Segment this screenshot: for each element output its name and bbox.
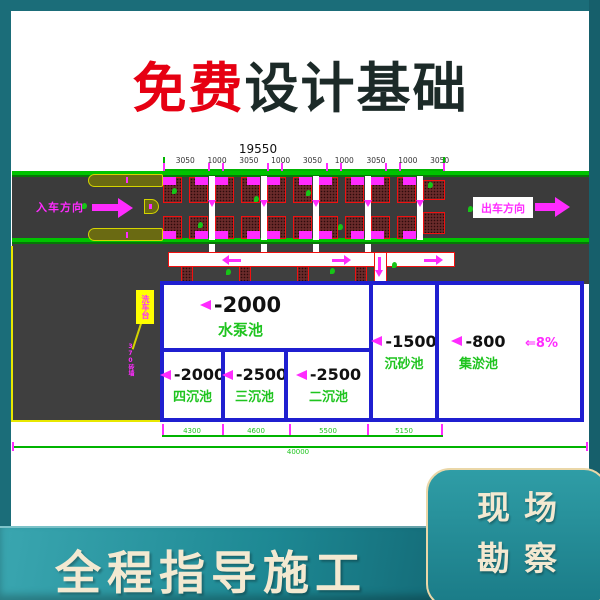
stall-marker — [403, 177, 416, 185]
dim-tick — [586, 442, 588, 451]
stall-marker — [163, 177, 176, 185]
stall-pad — [397, 216, 416, 239]
site-boundary-left — [11, 246, 13, 422]
stall-marker — [267, 177, 280, 185]
stall-marker — [371, 231, 384, 239]
pool-name: 沉砂池 — [384, 353, 423, 372]
stall-lane — [209, 176, 215, 240]
pool-depth: -800 — [465, 332, 505, 351]
entry-arrow-icon — [92, 204, 118, 211]
stall-marker — [371, 177, 384, 185]
stall-marker — [299, 177, 312, 185]
dim-seg: 3050 — [354, 156, 399, 165]
entry-direction-label: 入车方向 — [36, 199, 84, 215]
stall-marker — [215, 231, 228, 239]
stall-pad — [215, 177, 234, 203]
headline-rest: 设计基础 — [245, 44, 469, 123]
stall-marker — [247, 177, 260, 185]
entry-arrow-head-icon — [118, 198, 133, 218]
pool-name: 四沉池 — [173, 386, 212, 405]
plant-icon — [172, 188, 177, 194]
exit-direction-label: 出车方向 — [473, 197, 533, 218]
depth-marker-icon — [200, 300, 211, 310]
exit-arrow-head-icon — [555, 197, 570, 217]
pool-name: 二沉池 — [309, 386, 348, 405]
footer-slogan: 全程指导施工 — [55, 537, 367, 600]
stall-marker — [351, 177, 364, 185]
dim-label: 4600 — [236, 427, 276, 435]
headline: 免费设计基础 — [12, 48, 589, 118]
dim-tick — [12, 442, 14, 451]
stall-pad — [163, 216, 182, 239]
stall-pad — [371, 216, 390, 239]
plant-icon — [338, 224, 343, 230]
plant-icon — [198, 222, 203, 228]
pool-depth: -2500 — [310, 365, 361, 384]
dim-seg: 1000 — [398, 156, 417, 165]
pool-third: -2500 三沉池 — [221, 348, 288, 422]
pool-depth: -2000 — [174, 365, 225, 384]
dim-seg: 3050 — [290, 156, 335, 165]
stall-lane — [261, 176, 267, 240]
wash-stall-group — [267, 177, 313, 239]
stall-pad — [267, 177, 286, 203]
drain-channel — [168, 252, 455, 267]
stall-marker — [299, 231, 312, 239]
pool-name: 水泵池 — [218, 319, 263, 340]
dim-seg: 3050 — [227, 156, 272, 165]
dimension-segments: 3050 1000 3050 1000 3050 1000 3050 1000 … — [163, 156, 444, 165]
dim-seg: 3050 — [417, 156, 462, 165]
stall-marker — [319, 231, 332, 239]
stall-marker — [319, 177, 332, 185]
flow-arrow-right-icon — [332, 255, 351, 265]
dim-label: 5500 — [308, 427, 348, 435]
stall-pad — [423, 212, 445, 234]
channel-pillar — [297, 266, 309, 282]
stall-marker — [215, 177, 228, 185]
stall-lane — [313, 176, 319, 240]
island-mark — [126, 177, 128, 183]
depth-marker-icon — [222, 370, 233, 380]
dimension-line — [162, 435, 443, 437]
stall-marker — [195, 231, 208, 239]
channel-pillar — [239, 266, 251, 282]
lane-arrow-icon — [208, 200, 216, 207]
dimension-total-top: 19550 — [225, 142, 291, 156]
flow-arrow-right-icon — [424, 255, 443, 265]
overall-dim-label: 40000 — [278, 448, 318, 456]
headline-highlight: 免费 — [133, 44, 245, 123]
pool-name: 三沉池 — [235, 386, 274, 405]
pool-depth: -2500 — [236, 365, 287, 384]
plant-icon — [468, 206, 473, 212]
stall-pad — [397, 177, 416, 203]
lane-arrow-icon — [416, 200, 424, 207]
stall-pad — [345, 216, 364, 239]
site-boundary-bottom — [12, 420, 162, 422]
lane-arrow-icon — [312, 200, 320, 207]
plant-icon — [330, 268, 335, 274]
stall-pad — [319, 177, 338, 203]
pool-depth: -1500 — [385, 332, 436, 351]
stall-marker — [403, 231, 416, 239]
wash-stall-group — [319, 177, 365, 239]
island-mark — [126, 232, 128, 238]
plant-icon — [254, 196, 259, 202]
frame-left — [0, 0, 11, 600]
plant-icon — [392, 262, 397, 268]
frame-top — [0, 0, 600, 11]
stall-pad — [241, 216, 260, 239]
stall-pad — [267, 216, 286, 239]
stall-pad — [319, 216, 338, 239]
stall-pad — [293, 216, 312, 239]
depth-marker-icon — [296, 370, 307, 380]
flow-arrow-down-icon — [378, 257, 381, 271]
channel-pillar — [355, 266, 367, 282]
badge-line2: 勘察 — [463, 533, 571, 584]
depth-marker-icon — [371, 336, 382, 346]
plant-icon — [306, 190, 311, 196]
dim-seg: 1000 — [335, 156, 354, 165]
pool-name: 集淤池 — [459, 353, 498, 372]
dim-label: 5150 — [384, 427, 424, 435]
wash-stall-group — [371, 177, 417, 239]
stall-marker — [195, 177, 208, 185]
lane-arrow-icon — [260, 200, 268, 207]
stall-marker — [267, 231, 280, 239]
stall-pad — [189, 177, 208, 203]
pool-second: -2500 二沉池 — [284, 348, 373, 422]
pool-pump: -2000 水泵池 — [160, 281, 373, 352]
pool-sand: -1500 沉砂池 — [369, 281, 439, 422]
stall-lane — [417, 176, 423, 240]
depth-marker-icon — [160, 370, 171, 380]
stall-pad — [345, 177, 364, 203]
pool-depth: -2000 — [214, 293, 281, 317]
platform-note: 370砖墙 — [127, 343, 133, 376]
stall-pad — [371, 177, 390, 203]
stopper-mark — [149, 204, 152, 209]
plant-icon — [226, 269, 231, 275]
pool-silt: -800 集淤池 — [435, 281, 584, 422]
stall-marker — [247, 231, 260, 239]
dim-label: 4300 — [172, 427, 212, 435]
promo-image: 免费设计基础 19550 3050 1000 3050 1000 3050 10… — [0, 0, 600, 600]
stall-marker — [351, 231, 364, 239]
slope-label: ⇐8% — [525, 336, 558, 351]
badge-line1: 现场 — [463, 482, 571, 533]
depth-marker-icon — [451, 336, 462, 346]
flow-arrow-left-icon — [222, 255, 241, 265]
pool-fourth: -2000 四沉池 — [160, 348, 225, 422]
stall-pad — [215, 216, 234, 239]
wheel-stop — [144, 199, 159, 214]
channel-pillar — [181, 266, 193, 282]
plant-icon — [428, 182, 433, 188]
dim-seg: 3050 — [163, 156, 208, 165]
stall-pad — [423, 180, 445, 200]
plant-icon — [82, 203, 87, 209]
exit-arrow-icon — [535, 203, 555, 211]
lane-arrow-icon — [364, 200, 372, 207]
wash-stall-group — [163, 177, 209, 239]
platform-callout-text: 洗车台 — [141, 295, 149, 319]
site-survey-badge: 现场 勘察 — [426, 468, 600, 600]
stall-lane — [365, 176, 371, 240]
platform-callout: 洗车台 — [136, 290, 154, 324]
wash-stall-group — [215, 177, 261, 239]
stall-marker — [163, 231, 176, 239]
